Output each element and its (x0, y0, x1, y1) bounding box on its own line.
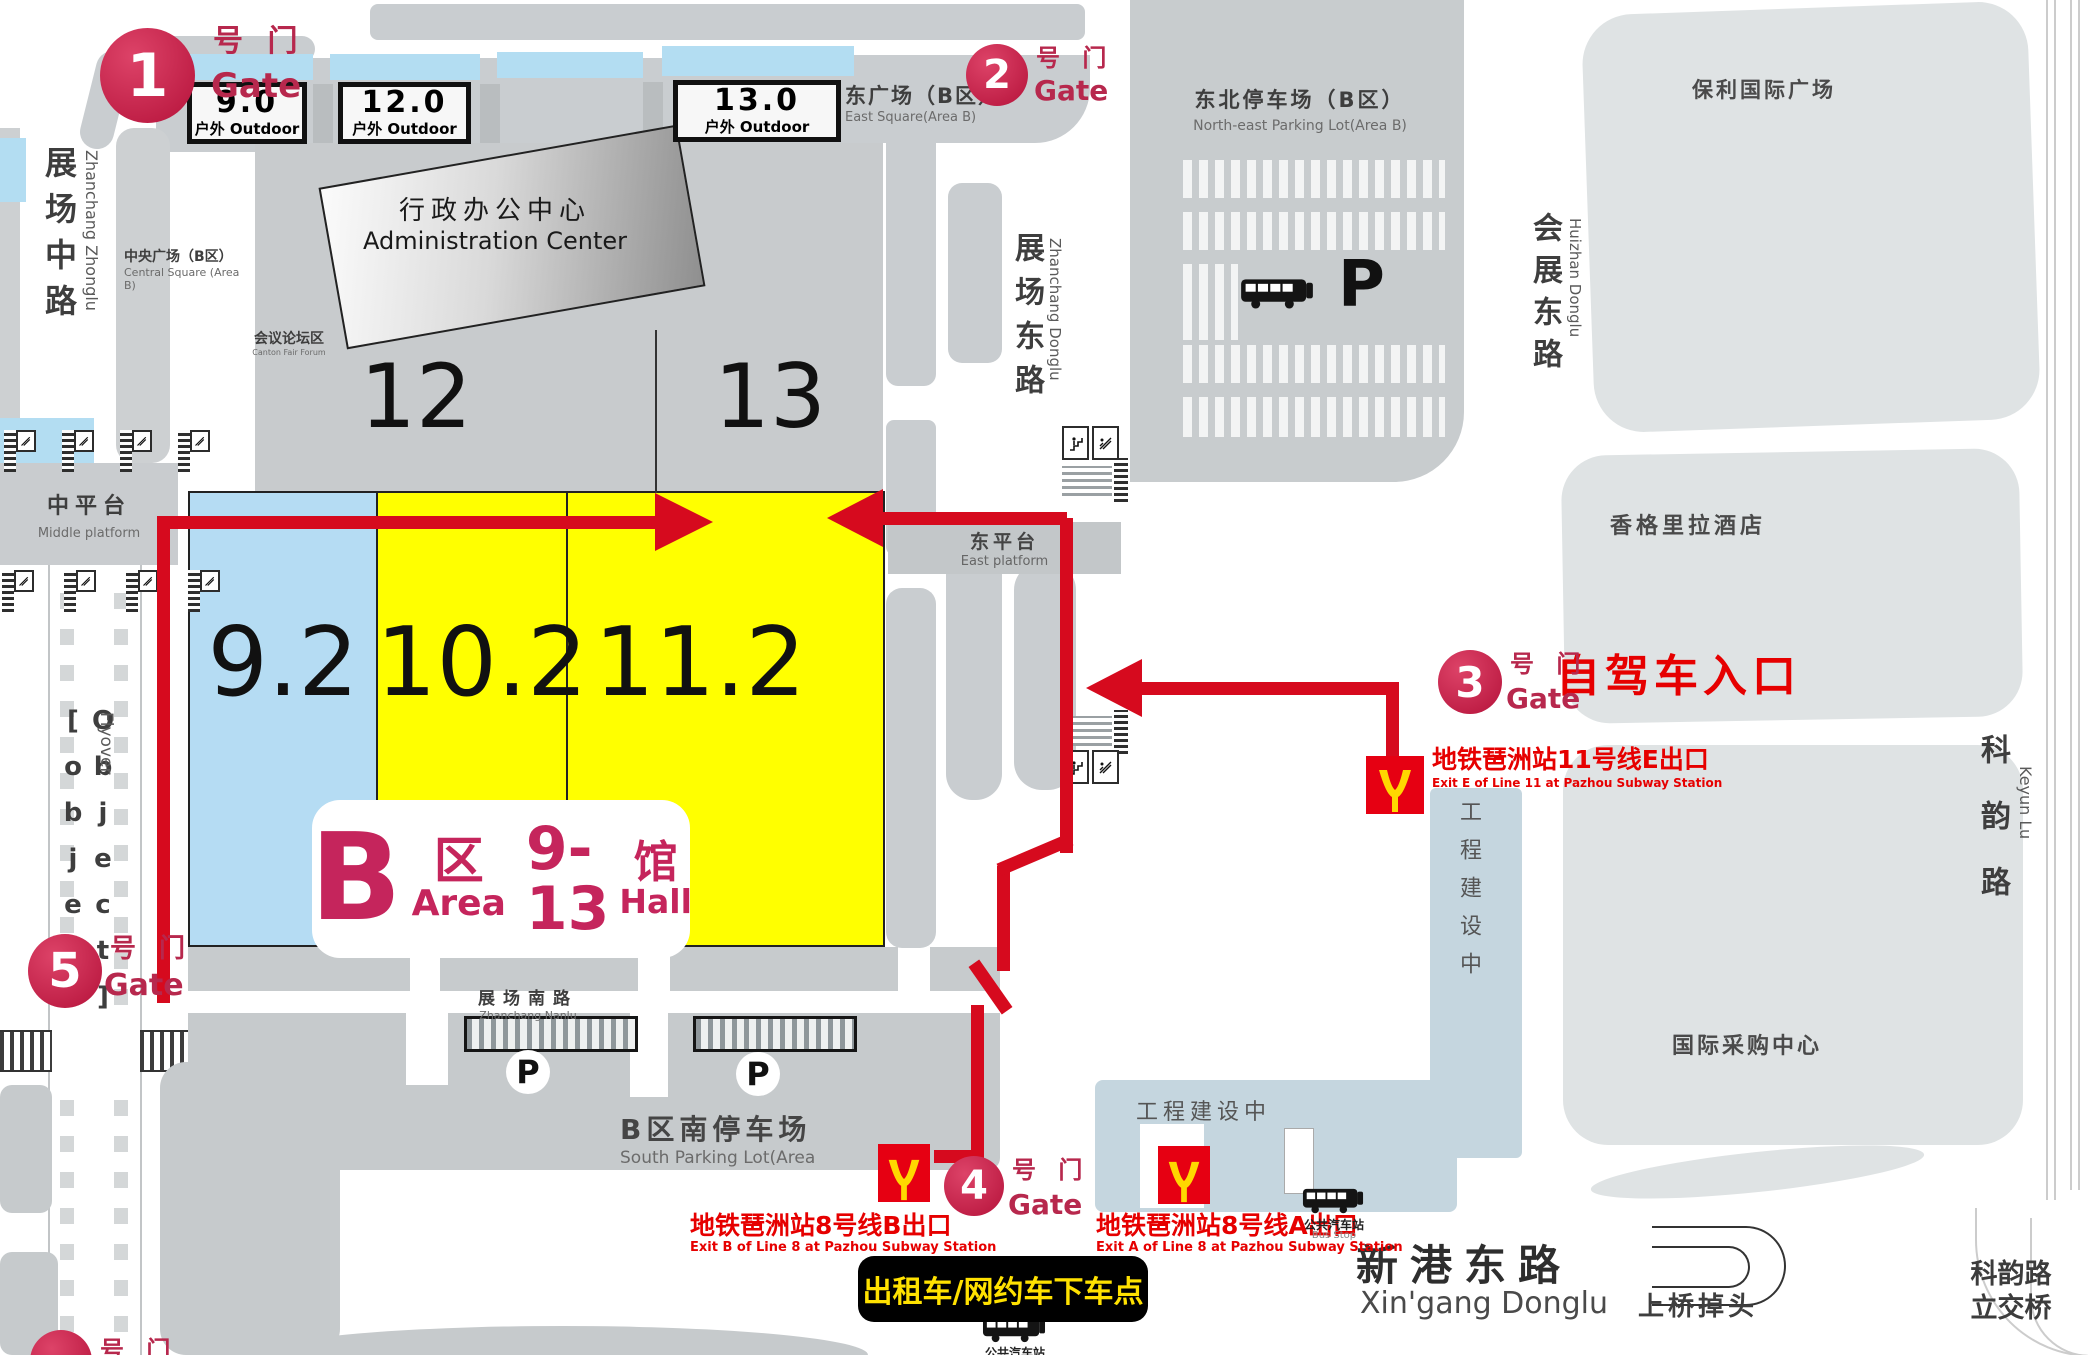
ne-parking-label: 东北停车场（B区） North-east Parking Lot(Area B) (1150, 84, 1450, 134)
blue-strip-3 (497, 52, 643, 78)
gate-4-suffix: 号 门 (1012, 1150, 1089, 1185)
stair-bar (178, 430, 190, 472)
forum-label-cn: 会议论坛区 (250, 328, 328, 348)
floor-13: 13 (714, 345, 826, 448)
parking-strip-2 (693, 1016, 857, 1052)
ne-grid-row-4 (1183, 345, 1445, 383)
east-platform-band: 东平台 East platform (888, 522, 1121, 574)
escalator-icon (76, 570, 96, 592)
stair-bar (64, 570, 76, 612)
bus-stop-a-icon (1302, 1186, 1364, 1220)
east-square-en: East Square(Area B) (845, 110, 1001, 125)
sw-block-1 (0, 1085, 52, 1213)
construction-south-label: 工程建设中 (1136, 1094, 1271, 1126)
floor-12: 12 (360, 345, 472, 448)
construction-south-gap-2 (1284, 1128, 1314, 1194)
south-band-gap-3 (898, 947, 930, 991)
pillar-2 (480, 84, 500, 146)
gate-6-suffix: 号 门 (100, 1330, 177, 1355)
ne-grid-row-2 (1183, 212, 1445, 250)
gate-1-num: 1 (127, 41, 169, 111)
route-west-horizontal (157, 516, 655, 529)
badge-area: Area (412, 886, 506, 922)
stairs-icon (1062, 426, 1089, 460)
keyun-road-line-4 (2078, 0, 2080, 1190)
metro-a-exit-en: Exit A of Line 8 at Pazhou Subway Statio… (1096, 1240, 1403, 1255)
route-gate3-arrow (1086, 659, 1142, 717)
route-gate4-v3 (1060, 518, 1073, 853)
stair-bar (2, 570, 14, 612)
keyun-road-line-1 (2046, 0, 2048, 1200)
pillar-1 (313, 84, 333, 146)
admin-label-cn: 行政办公中心 (340, 190, 650, 227)
central-square-en: Central Square (Area B) (124, 266, 244, 292)
east-strip-1 (886, 128, 936, 386)
east-stairs-icons-1 (1062, 426, 1119, 460)
outdoor-box-12-0: 12.0 户外 Outdoor (338, 82, 471, 144)
outdoor-12-0-num: 12.0 (361, 88, 447, 118)
taxi-dropoff-badge: 出租车/网约车下车点 (858, 1256, 1148, 1322)
metro-icon-line8-a (1158, 1146, 1210, 1204)
mp-escalators-row-2 (2, 570, 220, 612)
route-west-arrow (655, 493, 713, 551)
escalator-unit (178, 430, 210, 472)
gate-3-suffix: 号 门 (1510, 644, 1587, 679)
sourcing-building (1563, 745, 2023, 1145)
escalator-icon (1092, 750, 1119, 784)
badge-guan: 馆 (634, 841, 678, 885)
south-parking-gap-1 (406, 1013, 448, 1085)
keyun-road-line-2 (2054, 0, 2056, 1200)
escalator-icon (14, 570, 34, 592)
escalator-icon (138, 570, 158, 592)
gate-2-num: 2 (983, 52, 1011, 98)
canton-fair-area-b-map: 中平台 Middle platform 行政办公中心 Administratio… (0, 0, 2088, 1355)
left-road-blob (116, 128, 170, 463)
crosswalk-left-1 (0, 1030, 52, 1072)
outdoor-box-13-0: 13.0 户外 Outdoor (673, 80, 841, 142)
taxi-dropoff-label: 出租车/网约车下车点 (863, 1267, 1144, 1311)
zhanchang-nanlu-cn: 展场南路 (478, 984, 578, 1009)
huizhan-donglu-cn: 会展东路 (1522, 212, 1566, 380)
gate-4-word: Gate (1008, 1188, 1082, 1221)
bus-stop-b-cn: 公共汽车站 (976, 1344, 1054, 1355)
south-parking-en: South Parking Lot(Area (620, 1148, 815, 1168)
outdoor-9-0-sub: 户外 Outdoor (195, 118, 300, 139)
east-crosswalk-1 (1062, 466, 1112, 496)
sourcing-label: 国际采购中心 (1672, 1028, 1822, 1060)
zhanchang-zhonglu-en: Zhanchang Zhonglu (82, 150, 101, 311)
metro-icon-line11-e (1366, 756, 1424, 814)
escalator-icon (74, 430, 94, 452)
zhanchang-donglu-cn: 展场东路 (1004, 232, 1048, 408)
middle-platform-label-en: Middle platform (38, 526, 140, 541)
mp-escalators-row-1 (4, 430, 210, 472)
top-road-median (370, 4, 1085, 40)
south-parking-cn: B区南停车场 (620, 1108, 815, 1148)
stair-bar (120, 430, 132, 472)
gate-4-num: 4 (960, 1163, 988, 1209)
escalator-icon (16, 430, 36, 452)
forum-label: 会议论坛区 Canton Fair Forum (250, 328, 328, 357)
keyun-lu-cn: 科韵路 (1970, 734, 2014, 932)
ne-grid-row-5 (1183, 397, 1445, 437)
escalator-unit (188, 570, 220, 612)
hall-12-13-divider (655, 330, 657, 493)
escalator-unit (120, 430, 152, 472)
parking-p-1: P (506, 1050, 550, 1094)
zhanchang-nanlu-en: Zhanchang Nanlu (478, 1009, 578, 1022)
escalator-unit (64, 570, 96, 612)
keyun-lu-en: Keyun Lu (2016, 766, 2035, 839)
keyun-road-line-3 (2070, 0, 2072, 1190)
badge-hall: Hall (619, 885, 692, 918)
blue-strip-2 (330, 54, 480, 80)
escalator-icon (200, 570, 220, 592)
badge-qu-area: 区 Area (412, 836, 506, 922)
gate-4-circle: 4 (944, 1156, 1004, 1216)
east-median-1 (948, 183, 1002, 363)
route-gate4-v2 (997, 866, 1010, 971)
escalator-unit (126, 570, 158, 612)
gate-5-num: 5 (48, 943, 81, 999)
stair-bar (188, 570, 200, 612)
east-hatchbar-1 (1114, 458, 1128, 502)
outdoor-13-0-num: 13.0 (714, 86, 800, 116)
zhanchang-donglu-en: Zhanchang Donglu (1046, 238, 1064, 381)
escalator-icon (190, 430, 210, 452)
gate-3-word: Gate (1506, 682, 1580, 715)
blue-patch-1 (0, 138, 26, 202)
bus-stop-a-en: Bus Stop (1296, 1230, 1372, 1241)
gate-5-circle: 5 (28, 934, 102, 1008)
metro-e-exit-en: Exit E of Line 11 at Pazhou Subway Stati… (1432, 776, 1722, 790)
zhanchang-zhonglu-cn: 展场中路 (36, 146, 82, 330)
metro-e-exit-cn: 地铁琶洲站11号线E出口 (1432, 740, 1709, 776)
poly-plaza-building (1581, 0, 2041, 433)
admin-label-en: Administration Center (340, 227, 650, 255)
route-gate4-h2 (883, 512, 1067, 525)
uturn-label: 上桥掉头 (1638, 1286, 1758, 1323)
route-gate4-v1 (971, 1005, 984, 1155)
stair-bar (126, 570, 138, 612)
admin-label: 行政办公中心 Administration Center (340, 190, 650, 255)
outdoor-12-0-sub: 户外 Outdoor (352, 118, 457, 139)
ne-grid-row-3 (1183, 264, 1238, 340)
badge-qu: 区 (434, 836, 484, 886)
hall-9-2-num: 9.2 (190, 608, 376, 718)
construction-east-label: 工程建设中 (1452, 800, 1484, 990)
gate-2-circle: 2 (966, 44, 1028, 106)
gate-5-word: Gate (104, 968, 184, 1003)
middle-platform-band: 中平台 Middle platform (0, 463, 178, 565)
hall-11-2-num: 11.2 (564, 608, 836, 718)
xingang-donglu-en: Xin'gang Donglu (1360, 1286, 1608, 1321)
keyun-bridge-label: 科韵路立交桥 (1968, 1258, 2054, 1326)
route-gate3-h (1140, 682, 1399, 695)
escalator-unit (62, 430, 94, 472)
escalator-unit (4, 430, 36, 472)
gate-1-word: Gate (211, 66, 301, 106)
central-square-cn: 中央广场（B区） (124, 246, 244, 266)
badge-guan-hall: 馆 Hall (619, 841, 692, 918)
metro-icon-line8-b (878, 1144, 930, 1202)
hall-10-2-num: 10.2 (376, 608, 564, 718)
south-parking-label: B区南停车场 South Parking Lot(Area (620, 1108, 815, 1168)
ne-parking-cn: 东北停车场（B区） (1150, 84, 1450, 114)
badge-range: 9-13 (526, 819, 610, 939)
ne-parking-p: P (1338, 248, 1385, 322)
escalator-icon (132, 430, 152, 452)
escalator-unit (2, 570, 34, 612)
shangrila-label: 香格里拉酒店 (1610, 508, 1766, 540)
gate-3-circle: 3 (1438, 650, 1502, 714)
stair-bar (4, 430, 16, 472)
zhanchang-nanlu-label: 展场南路 Zhanchang Nanlu (478, 984, 578, 1022)
east-median-2 (946, 545, 1002, 800)
metro-b-exit-cn: 地铁琶洲站8号线B出口 (690, 1206, 951, 1242)
flyover-cn: [object Object] (58, 706, 118, 1355)
self-drive-entrance-label: 自驾车入口 (1556, 640, 1801, 704)
ne-bus-icon (1240, 276, 1314, 316)
flyover-en-label: Flyover (96, 712, 116, 774)
route-gate4-arrow (827, 489, 883, 547)
middle-platform-label-cn: 中平台 (47, 488, 131, 520)
gate-5-suffix: 号 门 (110, 928, 192, 965)
poly-plaza-label: 保利国际广场 (1692, 74, 1836, 104)
gate-2-suffix: 号 门 (1036, 38, 1113, 73)
east-platform-cn: 东平台 (970, 527, 1039, 554)
route-gate3-v (1386, 692, 1399, 764)
area-b-badge: B 区 Area 9-13 馆 Hall (312, 800, 690, 958)
badge-b: B (310, 819, 401, 939)
gate-3-num: 3 (1455, 658, 1484, 707)
gate-1-circle: 1 (100, 28, 195, 123)
bottom-hill (258, 1326, 868, 1355)
sourcing-swoosh (1589, 1135, 1926, 1210)
ne-parking-en: North-east Parking Lot(Area B) (1150, 118, 1450, 134)
east-strip-3 (886, 588, 936, 948)
metro-b-exit-en: Exit B of Line 8 at Pazhou Subway Statio… (690, 1240, 996, 1255)
blue-strip-4 (662, 46, 854, 76)
gate-2-word: Gate (1034, 74, 1108, 107)
outdoor-13-0-sub: 户外 Outdoor (705, 116, 810, 137)
forum-label-en: Canton Fair Forum (250, 348, 328, 357)
huizhan-donglu-en: Huizhan Donglu (1566, 218, 1584, 337)
escalator-icon (1092, 426, 1119, 460)
uturn-arc-inner (1652, 1246, 1750, 1288)
gate-1-suffix: 号 门 (213, 16, 304, 60)
parking-p-2: P (736, 1052, 780, 1096)
central-square-label: 中央广场（B区） Central Square (Area B) (124, 246, 244, 292)
east-platform-en: East platform (961, 554, 1048, 569)
stair-bar (62, 430, 74, 472)
ne-grid-row-1 (1183, 160, 1445, 198)
